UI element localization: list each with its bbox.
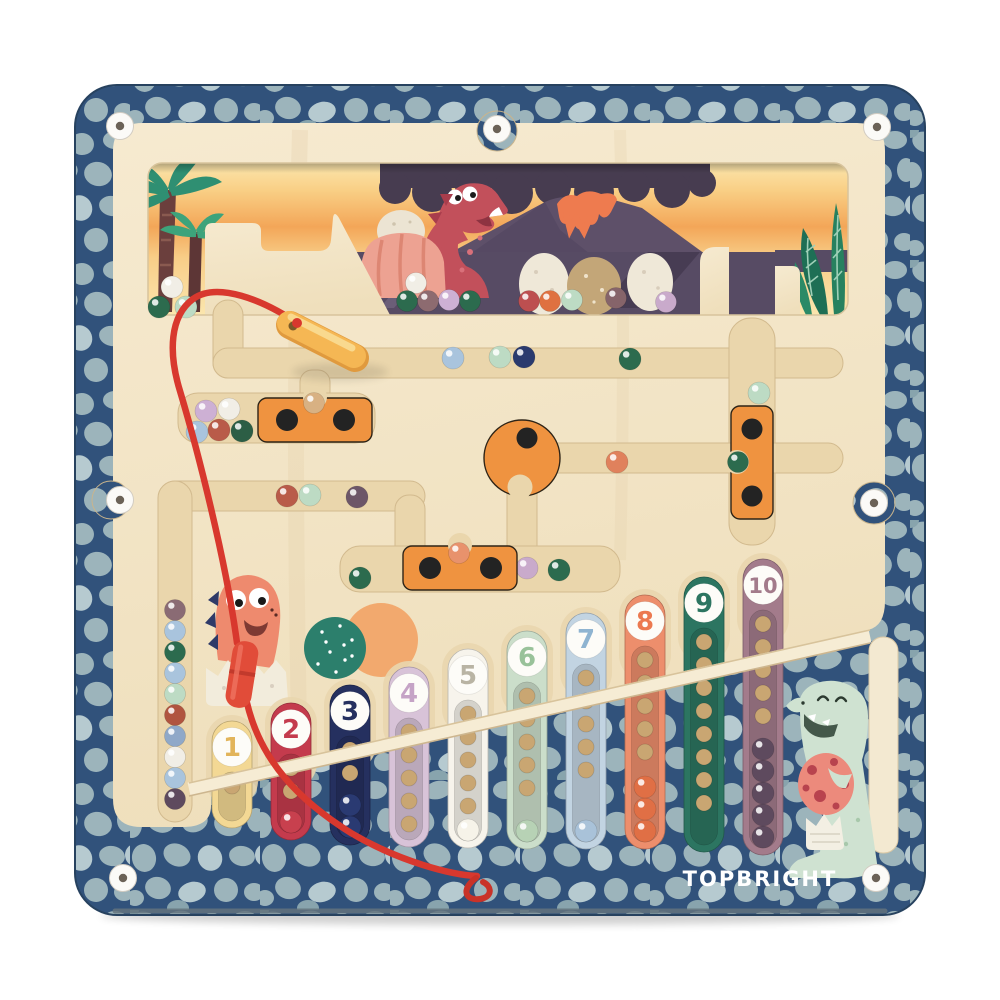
column-ball[interactable] [752,826,774,848]
screw-icon [861,490,888,517]
maze-ball[interactable] [548,559,570,581]
knob-finger-hole[interactable] [517,428,538,449]
ball-hole [637,744,653,760]
slider-finger-hole[interactable] [333,409,355,431]
collection-ball[interactable] [165,768,186,789]
maze-ball[interactable] [349,567,371,589]
ball-hole [401,770,417,786]
ball-hole [460,798,476,814]
window-inner-shadow [148,163,848,173]
maze-ball[interactable] [606,451,628,473]
ball-hole [460,775,476,791]
column-ball[interactable] [575,820,597,842]
scene-ball[interactable] [161,276,183,298]
column-ball[interactable] [457,819,479,841]
pocket-ball[interactable] [208,419,230,441]
groove-knob-channel [540,443,843,473]
scene-ball[interactable] [562,290,583,311]
maze-ball[interactable] [442,347,464,369]
ball-hole [460,752,476,768]
collection-ball[interactable] [165,726,186,747]
brand-logo: TOPBRIGHT [683,867,838,891]
ball-hole [401,747,417,763]
screw-icon [484,116,511,143]
collection-ball[interactable] [165,600,186,621]
scene-ball[interactable] [606,288,627,309]
ball-hole [637,721,653,737]
pocket-ball[interactable] [231,420,253,442]
ball-hole [696,703,712,719]
right-edge-ledge [869,637,898,853]
notch-ball[interactable] [728,452,749,473]
ball-hole [696,772,712,788]
ball-hole [519,688,535,704]
collection-ball[interactable] [165,684,186,705]
column-ball[interactable] [752,804,774,826]
column-7: 7 [560,607,612,849]
column-number: 2 [282,715,300,745]
notch-ball[interactable] [304,393,325,414]
ball-hole [696,634,712,650]
ball-hole [342,765,358,781]
maze-ball[interactable] [516,557,538,579]
scene-ball[interactable] [148,296,170,318]
column-number: 1 [223,733,241,763]
column-ball[interactable] [752,738,774,760]
scene-ball[interactable] [418,291,439,312]
screw-icon [110,865,137,892]
column-number: 5 [459,661,477,691]
ball-hole [696,749,712,765]
column-number: 7 [577,625,595,655]
ball-hole [637,652,653,668]
scene-ball[interactable] [397,291,418,312]
ball-hole [401,793,417,809]
collection-ball[interactable] [165,642,186,663]
column-number: 8 [636,607,654,637]
collection-ball[interactable] [165,621,186,642]
cord-knot [292,318,302,328]
column-number: 9 [695,589,713,619]
collection-ball[interactable] [165,789,186,810]
ball-hole [401,816,417,832]
column-ball[interactable] [634,776,656,798]
column-ball[interactable] [280,811,302,833]
column-number: 6 [518,643,536,673]
column-8: 8 [619,589,671,849]
maze-ball[interactable] [346,486,368,508]
column-ball[interactable] [339,794,361,816]
slider-finger-hole[interactable] [419,557,441,579]
column-4: 4 [383,661,435,847]
screw-icon [107,113,134,140]
column-ball[interactable] [752,782,774,804]
scene-ball[interactable] [540,291,561,312]
column-ball[interactable] [634,798,656,820]
knob-notch [508,475,533,500]
scene-ball[interactable] [519,291,540,312]
screw-icon [864,114,891,141]
ball-hole [519,780,535,796]
teal-dotted-circle [304,617,366,679]
maze-ball[interactable] [619,348,641,370]
ball-hole [578,670,594,686]
maze-ball[interactable] [299,484,321,506]
column-ball[interactable] [634,820,656,842]
maze-ball[interactable] [276,485,298,507]
ball-hole [696,795,712,811]
ball-hole [578,739,594,755]
ball-hole [637,698,653,714]
column-number: 10 [748,574,777,598]
ball-hole [578,716,594,732]
collection-ball[interactable] [165,747,186,768]
scene-ball[interactable] [460,291,481,312]
scene-ball[interactable] [439,290,460,311]
ball-hole [519,734,535,750]
slider-finger-hole[interactable] [480,557,502,579]
scene-ball[interactable] [656,292,677,313]
toy-board-photo: 12345678910 [0,0,1000,1000]
pocket-ball[interactable] [218,398,240,420]
column-ball[interactable] [752,760,774,782]
ball-hole [519,757,535,773]
maze-ball[interactable] [489,346,511,368]
ball-hole [696,680,712,696]
slider-finger-hole[interactable] [742,486,763,507]
column-ball[interactable] [516,820,538,842]
collection-ball[interactable] [165,663,186,684]
pocket-ball[interactable] [195,400,217,422]
ball-hole [755,616,771,632]
collection-ball[interactable] [165,705,186,726]
slider-finger-hole[interactable] [276,409,298,431]
ball-hole [578,762,594,778]
maze-ball[interactable] [748,382,770,404]
screw-icon [107,487,134,514]
column-5: 5 [442,643,494,848]
ball-hole [755,708,771,724]
ball-hole [696,726,712,742]
notch-ball[interactable] [449,543,470,564]
column-number: 3 [341,697,359,727]
screw-icon [863,865,890,892]
column-9: 9 [678,571,730,852]
column-10: 10 [737,553,789,855]
ball-hole [755,685,771,701]
column-number: 4 [400,679,418,709]
maze-ball[interactable] [513,346,535,368]
column-6: 6 [501,625,553,849]
slider-finger-hole[interactable] [742,419,763,440]
